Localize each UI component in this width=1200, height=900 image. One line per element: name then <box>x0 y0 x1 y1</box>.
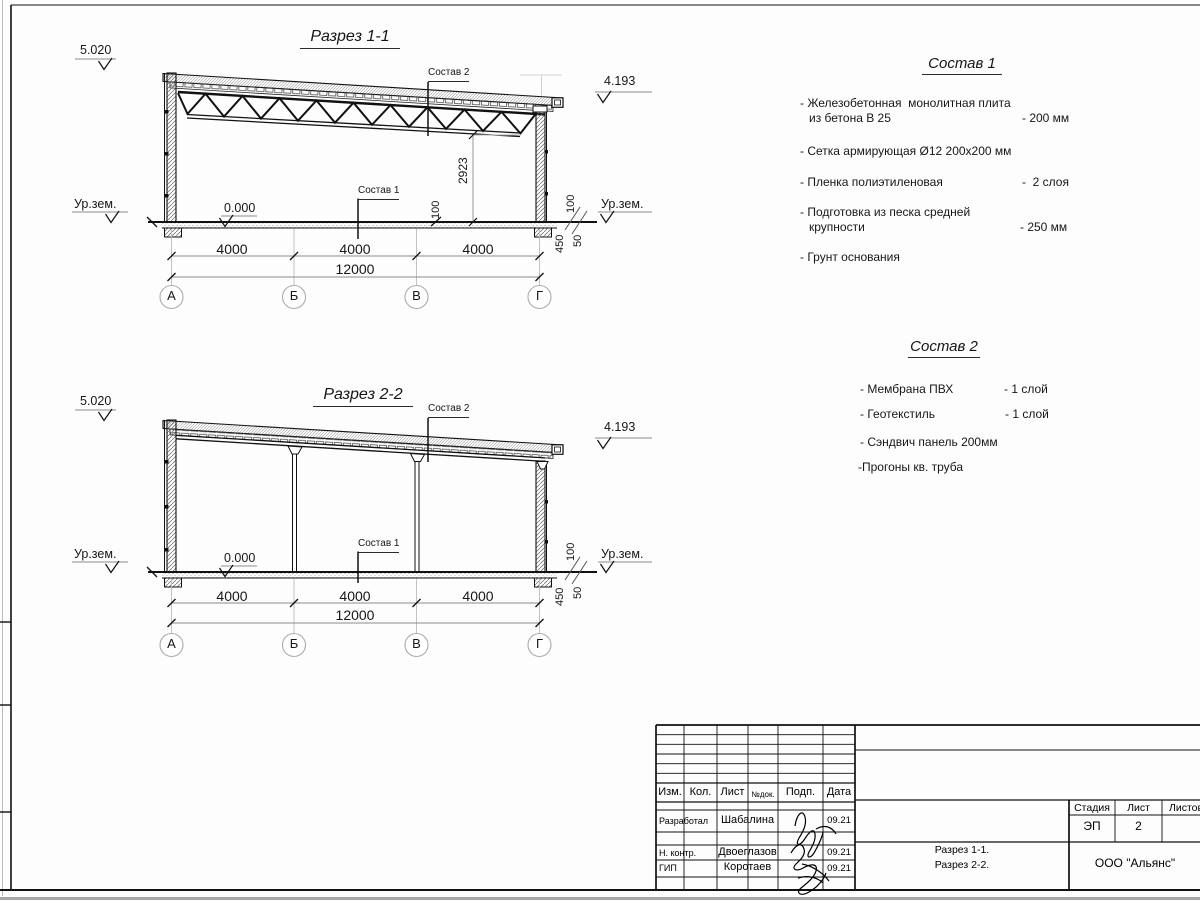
titleblock-row2-date: 09.21 <box>823 848 855 859</box>
section2-axis-a: А <box>159 637 184 652</box>
section2-zero-level: 0.000 <box>224 551 255 565</box>
titleblock-col-ndok: №док. <box>748 790 778 799</box>
composition2-title: Состав 2 <box>908 338 980 358</box>
titleblock-row2-name: Двоеглазов <box>717 846 778 859</box>
section2-dim-50: 50 <box>572 587 585 599</box>
section1-dim-450: 450 <box>554 235 567 253</box>
section1-dim-100-right: 100 <box>565 195 578 213</box>
composition1-item4-value: - 250 мм <box>1020 221 1067 235</box>
composition1-title: Состав 1 <box>922 55 1002 75</box>
section2-axis-b: Б <box>282 637 307 652</box>
section2-ground-left: Ур.зем. <box>74 547 116 561</box>
section2-dim-450: 450 <box>554 588 567 606</box>
titleblock-sheet-label: Лист <box>1115 802 1162 814</box>
section2-ground-right: Ур.зем. <box>601 547 643 561</box>
composition1-item2: - Сетка армирующая Ø12 200х200 мм <box>800 145 1011 159</box>
composition1-item5: - Грунт основания <box>800 251 900 265</box>
titleblock-content-line1: Разрез 1-1. <box>855 844 1069 856</box>
section1-zero-level: 0.000 <box>224 201 255 215</box>
titleblock-col-izm: Изм. <box>656 786 684 799</box>
sheet-frame <box>0 0 1200 900</box>
composition1-item4-line2: крупности <box>809 221 865 235</box>
titleblock-row3-date: 09.21 <box>823 864 855 875</box>
section2-title: Разрез 2-2 <box>313 386 413 407</box>
section1-dim-total: 12000 <box>325 261 385 277</box>
titleblock-stage-value: ЭП <box>1069 820 1115 834</box>
section1-axis-v: В <box>404 289 429 304</box>
titleblock-row3-role: ГИП <box>659 863 677 873</box>
section1-axis-g: Г <box>527 289 552 304</box>
composition2-item2-value: - 1 слой <box>1005 408 1049 422</box>
section1-callout-floor: Состав 1 <box>358 185 399 200</box>
section2-axis-v: В <box>404 637 429 652</box>
section1-dim-100-floor: 100 <box>430 201 443 219</box>
section2-callout-roof: Состав 2 <box>428 403 469 418</box>
titleblock-row1-date: 09.21 <box>823 816 855 827</box>
section2-dim-100-right: 100 <box>565 543 578 561</box>
section1-dim-2923: 2923 <box>457 157 471 184</box>
section1-axis-a: А <box>159 289 184 304</box>
section2-elevation-right: 4.193 <box>604 420 635 434</box>
section2-elevation-left: 5.020 <box>80 394 111 408</box>
composition2-item4: -Прогоны кв. труба <box>858 461 963 475</box>
section1-dim-bay-3: 4000 <box>448 241 508 257</box>
titleblock-sheets-label: Листов <box>1162 802 1200 814</box>
composition1-item1-line1: - Железобетонная монолитная плита <box>800 97 1011 111</box>
composition2-item2: - Геотекстиль <box>860 408 935 422</box>
section2-dim-bay-1: 4000 <box>202 588 262 604</box>
section1-elevation-right: 4.193 <box>604 74 635 88</box>
drawing-sheet: Разрез 1-1 5.020 4.193 Ур.зем. Ур.зем. 0… <box>0 0 1200 900</box>
section2-dim-bay-3: 4000 <box>448 588 508 604</box>
titleblock-row1-name: Шабалина <box>717 814 778 827</box>
section2-axis-g: Г <box>527 637 552 652</box>
composition1-item1-line2: из бетона В 25 <box>809 112 891 126</box>
drawing-linework <box>0 0 1200 900</box>
titleblock-company: ООО "Альянс" <box>1071 857 1199 871</box>
section1-dim-50: 50 <box>572 235 585 247</box>
section1-ground-left: Ур.зем. <box>74 197 116 211</box>
section1-elevation-left: 5.020 <box>80 43 111 57</box>
titleblock-col-podp: Подп. <box>778 786 823 799</box>
titleblock-content-line2: Разрез 2-2. <box>855 859 1069 871</box>
composition2-item1-value: - 1 слой <box>1004 383 1048 397</box>
composition2-item1: - Мембрана ПВХ <box>860 383 953 397</box>
titleblock-row3-name: Коротаев <box>717 861 778 874</box>
titleblock-col-data: Дата <box>823 786 855 799</box>
titleblock-stage-label: Стадия <box>1069 802 1115 814</box>
section1-dim-bay-2: 4000 <box>325 241 385 257</box>
titleblock-col-kol: Кол. <box>684 786 717 799</box>
composition1-item4-line1: - Подготовка из песка средней <box>800 206 970 220</box>
section1-ground-right: Ур.зем. <box>601 197 643 211</box>
titleblock-row1-role: Разработал <box>659 816 708 826</box>
composition2-item3: - Сэндвич панель 200мм <box>860 436 998 450</box>
section1-dim-bay-1: 4000 <box>202 241 262 257</box>
section2-dim-total: 12000 <box>325 607 385 623</box>
composition1-item1-value: - 200 мм <box>1022 112 1069 126</box>
titleblock-col-list: Лист <box>717 786 748 799</box>
section1-title: Разрез 1-1 <box>300 28 400 49</box>
composition1-item3-value: - 2 слоя <box>1022 176 1069 190</box>
section2-callout-floor: Состав 1 <box>358 538 399 553</box>
titleblock-sheet-value: 2 <box>1115 820 1162 834</box>
section1-callout-roof: Состав 2 <box>428 67 469 82</box>
section1-axis-b: Б <box>282 289 307 304</box>
section2-dim-bay-2: 4000 <box>325 588 385 604</box>
titleblock-row2-role: Н. контр. <box>659 848 696 858</box>
composition1-item3: - Пленка полиэтиленовая <box>800 176 943 190</box>
